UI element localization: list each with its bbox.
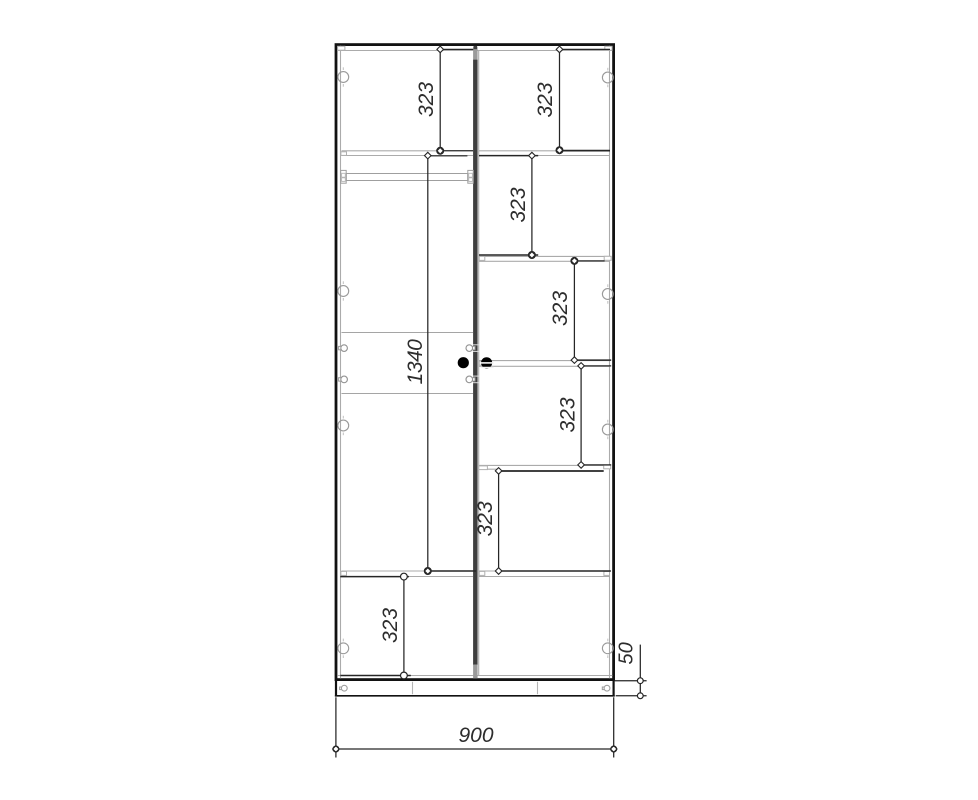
svg-text:323: 323 <box>474 501 497 536</box>
svg-text:1340: 1340 <box>404 339 427 385</box>
svg-text:323: 323 <box>379 608 402 643</box>
svg-text:323: 323 <box>415 82 438 117</box>
svg-text:323: 323 <box>549 291 572 326</box>
svg-text:323: 323 <box>507 187 530 222</box>
svg-text:50: 50 <box>615 642 637 664</box>
svg-text:900: 900 <box>458 724 493 747</box>
svg-text:323: 323 <box>534 82 557 117</box>
svg-text:323: 323 <box>557 397 580 432</box>
